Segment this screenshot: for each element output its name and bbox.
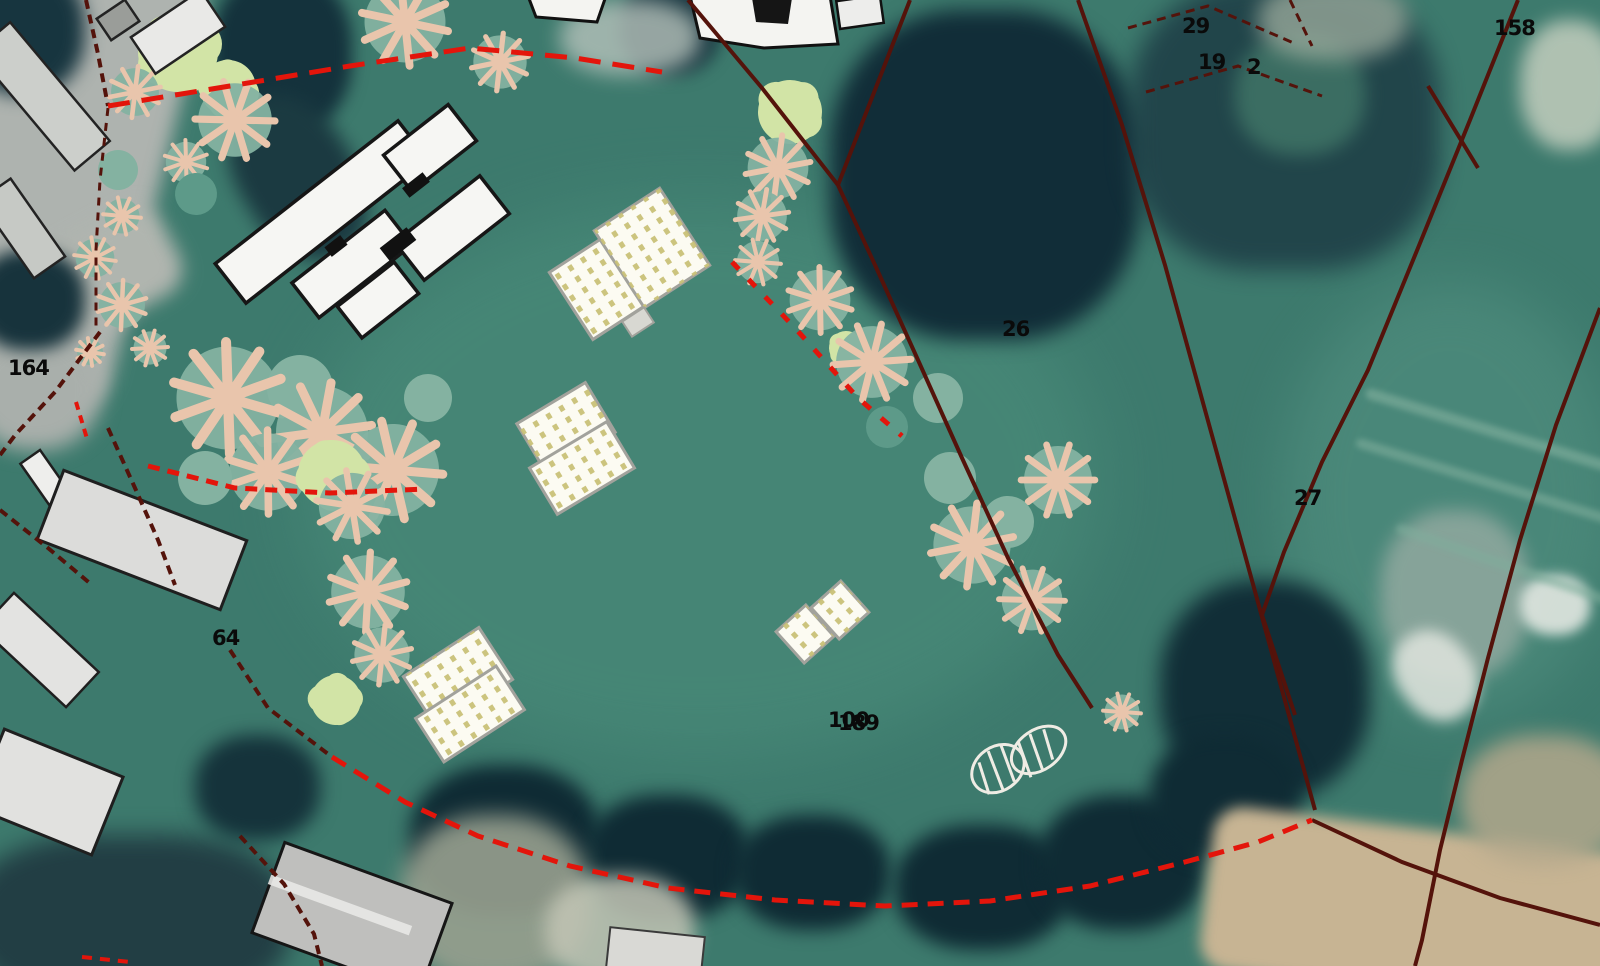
aerial-map-view[interactable]: 29192158262716464100189 <box>0 0 1600 966</box>
parcel-number-label: 29 <box>1182 14 1209 38</box>
parcel-number-label: 19 <box>1198 50 1225 74</box>
parcel-labels-layer: 29192158262716464100189 <box>0 0 1600 966</box>
parcel-number-label: 158 <box>1494 16 1535 40</box>
parcel-number-label: 164 <box>8 356 49 380</box>
parcel-number-label: 27 <box>1294 486 1321 510</box>
parcel-number-label: 64 <box>212 626 239 650</box>
parcel-number-label: 26 <box>1002 317 1029 341</box>
parcel-number-label: 189 <box>838 711 879 735</box>
parcel-number-label: 2 <box>1247 55 1261 79</box>
